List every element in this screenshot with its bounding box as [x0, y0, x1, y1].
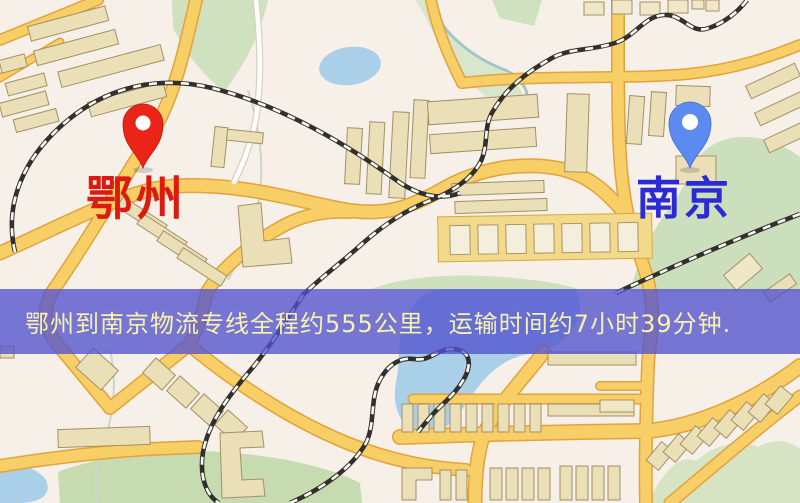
terrace-row-building: [438, 213, 653, 262]
origin-city-label: 鄂州: [86, 176, 186, 223]
map-canvas: [0, 0, 800, 503]
banner-text: 鄂州到南京物流专线全程约555公里，运输时间约7小时39分钟.: [25, 304, 731, 339]
destination-city-label: 南京: [636, 176, 732, 221]
route-map-screenshot: 鄂州 南京 鄂州到南京物流专线全程约555公里，运输时间约7小时39分钟.: [0, 0, 800, 503]
info-banner: 鄂州到南京物流专线全程约555公里，运输时间约7小时39分钟.: [0, 289, 800, 354]
